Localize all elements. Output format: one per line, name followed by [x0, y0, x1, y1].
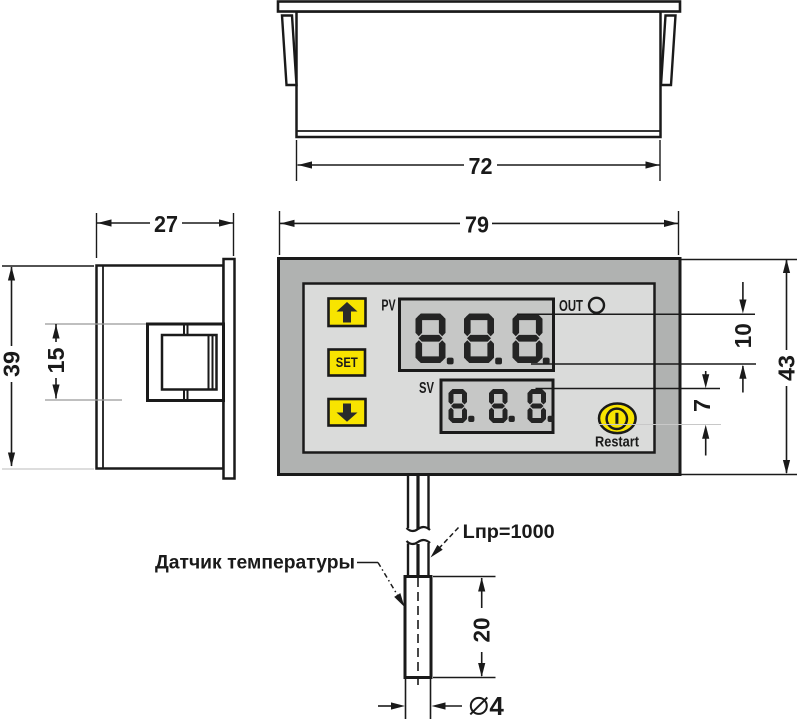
svg-text:79: 79 — [465, 211, 489, 237]
svg-text:PV: PV — [381, 298, 396, 315]
svg-text:27: 27 — [154, 211, 178, 237]
svg-text:OUT: OUT — [559, 298, 583, 315]
svg-text:43: 43 — [774, 355, 800, 381]
svg-text:10: 10 — [730, 323, 756, 348]
svg-text:15: 15 — [43, 348, 69, 374]
svg-text:7: 7 — [689, 399, 715, 412]
svg-text:4: 4 — [489, 691, 504, 719]
svg-text:20: 20 — [469, 618, 495, 643]
svg-text:SV: SV — [419, 380, 434, 397]
svg-text:Датчик температуры: Датчик температуры — [155, 552, 355, 574]
svg-text:39: 39 — [0, 351, 25, 377]
svg-text:SET: SET — [336, 355, 359, 370]
svg-text:Restart: Restart — [595, 435, 639, 451]
svg-text:72: 72 — [469, 153, 493, 179]
svg-text:Lпр=1000: Lпр=1000 — [463, 521, 555, 543]
